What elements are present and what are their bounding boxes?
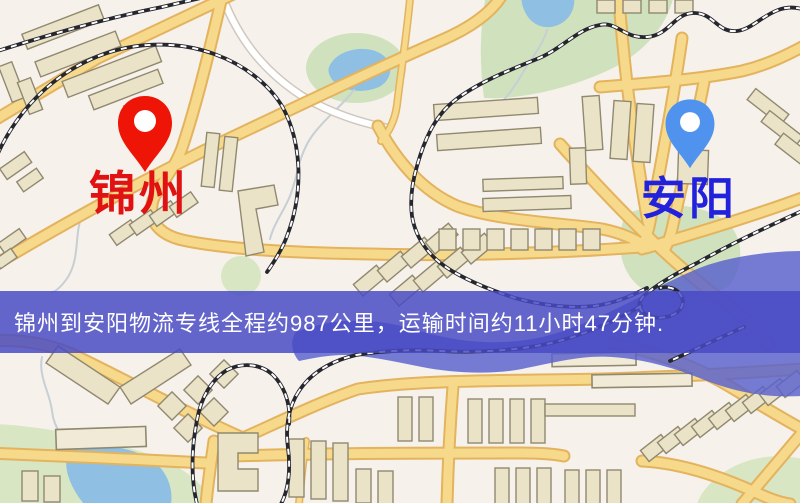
destination-city-label: 安阳 — [641, 176, 737, 221]
origin-city-label: 锦州 — [89, 171, 189, 218]
destination-pin-icon[interactable] — [661, 92, 719, 172]
map-view: 锦州 安阳 锦州到安阳物流专线全程约987公里，运输时间约11小时47分钟. — [0, 0, 800, 503]
route-info-text: 锦州到安阳物流专线全程约987公里，运输时间约11小时47分钟. — [14, 306, 664, 338]
route-info-banner: 锦州到安阳物流专线全程约987公里，运输时间约11小时47分钟. — [0, 291, 800, 353]
origin-pin-icon[interactable] — [113, 88, 177, 176]
map-background — [0, 0, 800, 503]
